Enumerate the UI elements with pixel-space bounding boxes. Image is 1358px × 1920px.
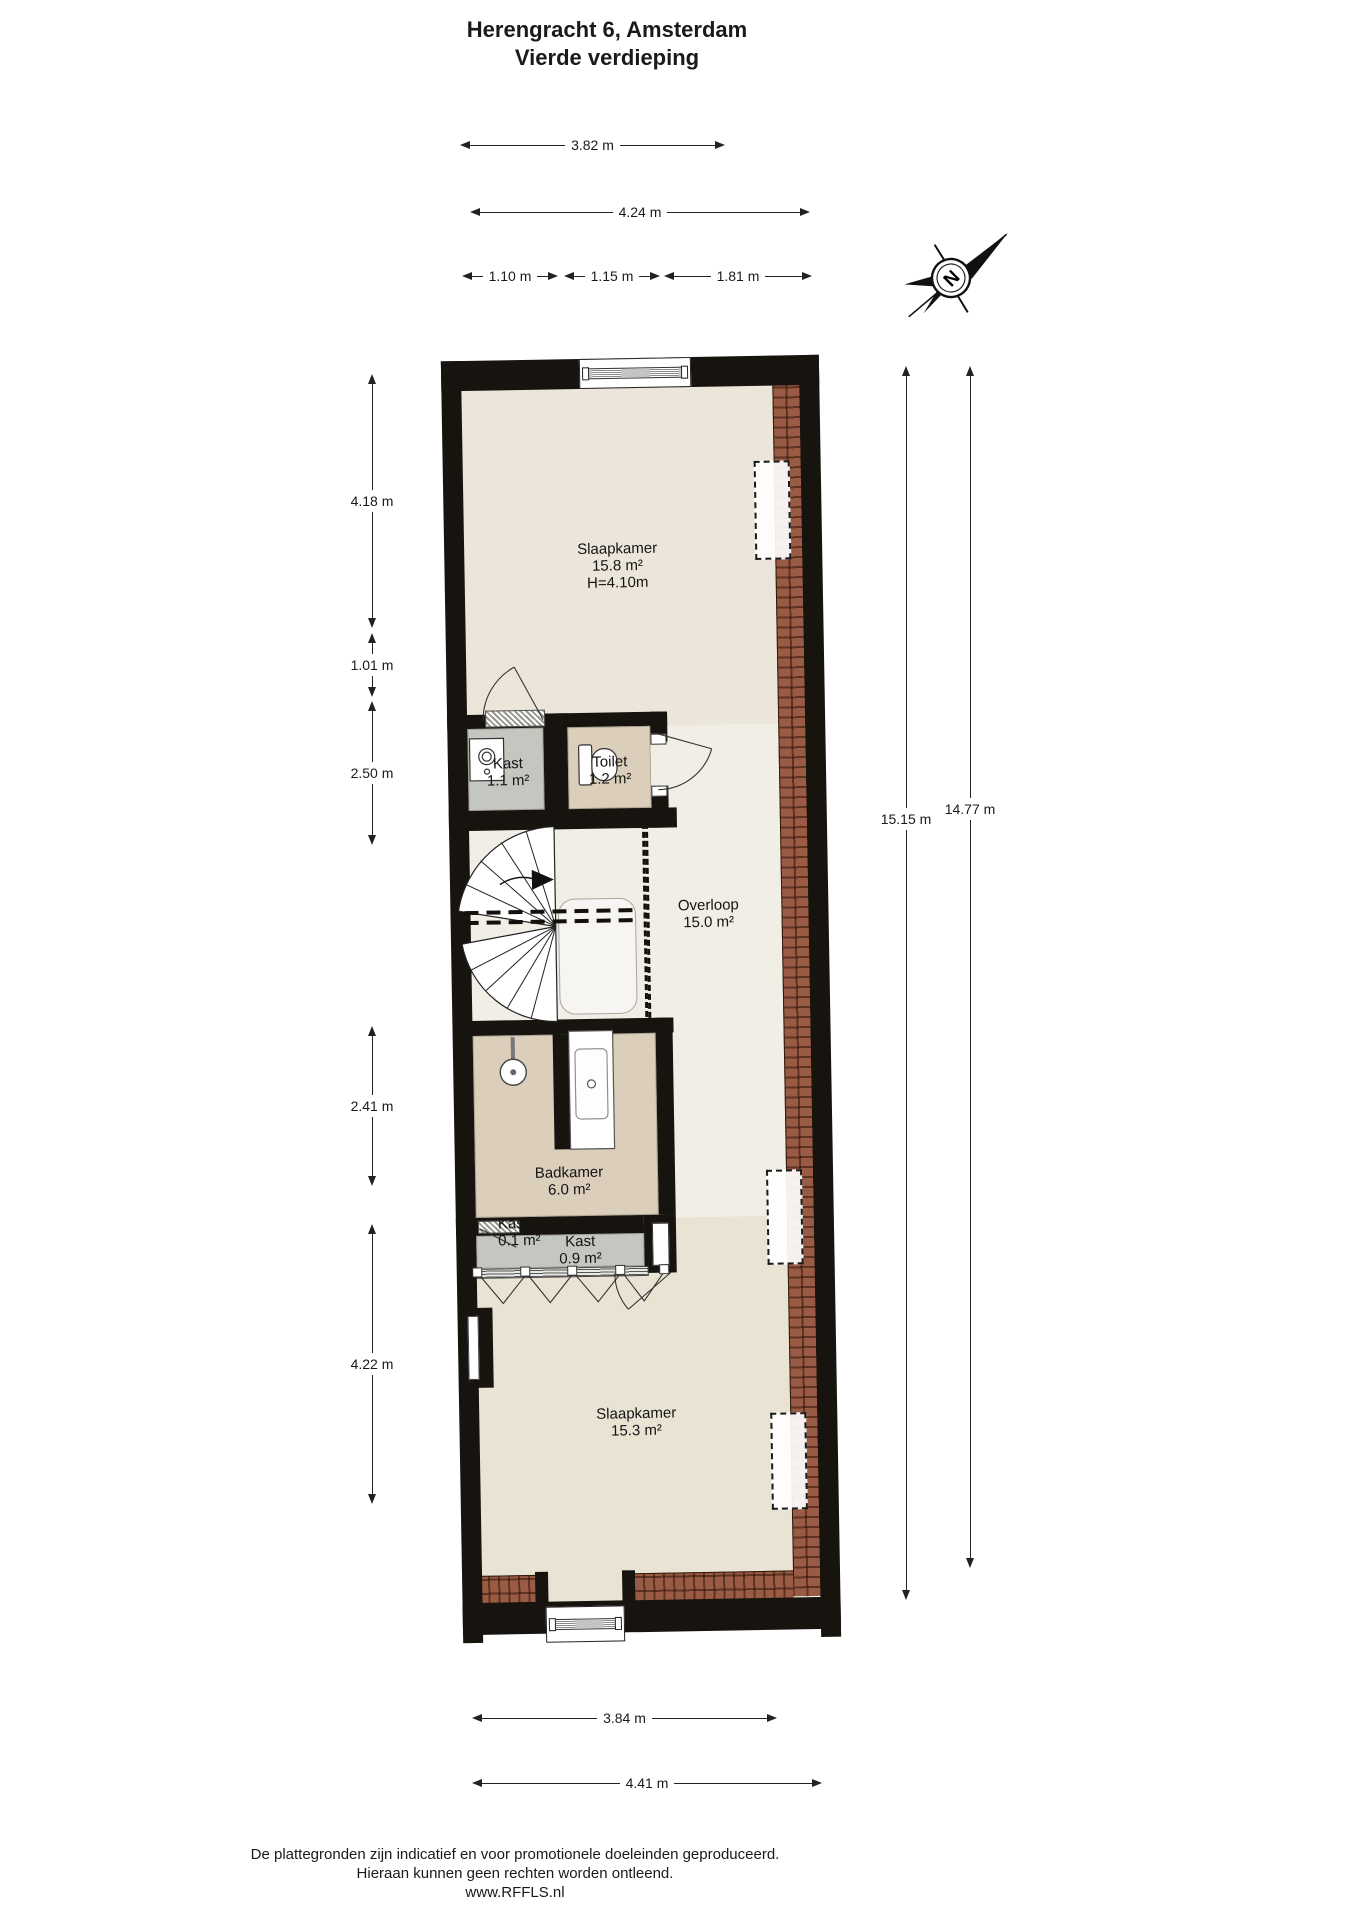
- arrow-left-icon: [470, 208, 480, 216]
- arrow-up-icon: [368, 633, 376, 643]
- dim-label: 2.41 m: [351, 1095, 394, 1117]
- compass-north-icon: N: [896, 230, 1036, 330]
- room-label-slaapkamer-top: Slaapkamer 15.8 m² H=4.10m: [577, 540, 658, 592]
- dim-label: 4.18 m: [351, 490, 394, 512]
- floorplan: Slaapkamer 15.8 m² H=4.10m Kast 1.1 m² T…: [441, 355, 841, 1643]
- arrow-down-icon: [368, 687, 376, 697]
- room-label-badkamer: Badkamer 6.0 m²: [535, 1164, 604, 1199]
- arrow-left-icon: [664, 272, 674, 280]
- dim-top-outer-width: 4.24 m: [470, 204, 810, 220]
- disclaimer-line-2: Hieraan kunnen geen rechten worden ontle…: [0, 1864, 1030, 1883]
- dim-bottom-outer-width: 4.41 m: [472, 1775, 822, 1791]
- dim-label: 1.10 m: [483, 268, 538, 284]
- dim-top-inner-width: 3.82 m: [460, 137, 725, 153]
- arrow-up-icon: [368, 1026, 376, 1036]
- arrow-left-icon: [472, 1779, 482, 1787]
- arrow-down-icon: [902, 1590, 910, 1600]
- arrow-up-icon: [966, 366, 974, 376]
- arrow-right-icon: [802, 272, 812, 280]
- dim-right-total: 15.15 m: [870, 366, 942, 1600]
- spiral-staircase: [457, 825, 641, 1023]
- door-arc: [482, 667, 543, 721]
- dim-top-segment-1: 1.10 m: [462, 268, 558, 284]
- dim-label: 1.15 m: [585, 268, 640, 284]
- shower-icon: [569, 1031, 615, 1150]
- room-label-overloop: Overloop 15.0 m²: [678, 896, 739, 931]
- arrow-right-icon: [767, 1714, 777, 1722]
- arrow-left-icon: [460, 141, 470, 149]
- door-arc: [615, 1273, 672, 1310]
- arrow-up-icon: [368, 374, 376, 384]
- dim-label: 4.24 m: [613, 204, 668, 220]
- bathroom-fixture-icon: [500, 1037, 527, 1085]
- arrow-down-icon: [368, 835, 376, 845]
- disclaimer-line-1: De plattegronden zijn indicatief en voor…: [0, 1845, 1030, 1864]
- arrow-left-icon: [462, 272, 472, 280]
- arrow-down-icon: [966, 1558, 974, 1568]
- arrow-up-icon: [368, 1224, 376, 1234]
- dim-label: 15.15 m: [881, 808, 932, 830]
- dim-bottom-inner-width: 3.84 m: [472, 1710, 777, 1726]
- footer-website: www.RFFLS.nl: [0, 1883, 1030, 1902]
- dim-label: 4.22 m: [351, 1353, 394, 1375]
- dim-right-inner: 14.77 m: [934, 366, 1006, 1568]
- arrow-left-icon: [472, 1714, 482, 1722]
- arrow-right-icon: [548, 272, 558, 280]
- arrow-right-icon: [650, 272, 660, 280]
- arrow-up-icon: [902, 366, 910, 376]
- arrow-up-icon: [368, 701, 376, 711]
- dim-top-segment-2: 1.15 m: [564, 268, 660, 284]
- dim-label: 2.50 m: [351, 762, 394, 784]
- room-label-kast-small: Kast 0.1 m²: [498, 1215, 541, 1250]
- arrow-right-icon: [800, 208, 810, 216]
- arrow-down-icon: [368, 618, 376, 628]
- arrow-down-icon: [368, 1176, 376, 1186]
- dim-left-5: 4.22 m: [337, 1224, 407, 1504]
- dim-label: 1.81 m: [711, 268, 766, 284]
- arrow-left-icon: [564, 272, 574, 280]
- dim-label: 1.01 m: [351, 654, 394, 676]
- floorplan-page: Herengracht 6, Amsterdam Vierde verdiepi…: [0, 0, 1358, 1920]
- room-label-toilet: Toilet 1.2 m²: [588, 753, 631, 788]
- dim-left-2: 1.01 m: [337, 633, 407, 697]
- door-arc: [657, 733, 712, 790]
- dim-left-3: 2.50 m: [337, 701, 407, 845]
- room-label-kast-wide: Kast 0.9 m²: [559, 1233, 602, 1268]
- arrow-right-icon: [715, 141, 725, 149]
- room-label-slaapkamer-bottom: Slaapkamer 15.3 m²: [596, 1404, 677, 1439]
- dim-left-4: 2.41 m: [337, 1026, 407, 1186]
- dim-label: 3.84 m: [597, 1710, 652, 1726]
- title-address: Herengracht 6, Amsterdam: [0, 16, 1214, 44]
- page-title: Herengracht 6, Amsterdam Vierde verdiepi…: [0, 16, 1214, 72]
- arrow-right-icon: [812, 1779, 822, 1787]
- arrow-down-icon: [368, 1494, 376, 1504]
- room-label-kast-upper: Kast 1.1 m²: [486, 755, 529, 790]
- dim-label: 14.77 m: [945, 798, 996, 820]
- dim-label: 4.41 m: [620, 1775, 675, 1791]
- footer-disclaimer: De plattegronden zijn indicatief en voor…: [0, 1845, 1030, 1902]
- title-floor: Vierde verdieping: [0, 44, 1214, 72]
- folding-closet-doors: [481, 1274, 663, 1304]
- dim-top-segment-3: 1.81 m: [664, 268, 812, 284]
- dim-label: 3.82 m: [565, 137, 620, 153]
- dim-left-1: 4.18 m: [337, 374, 407, 628]
